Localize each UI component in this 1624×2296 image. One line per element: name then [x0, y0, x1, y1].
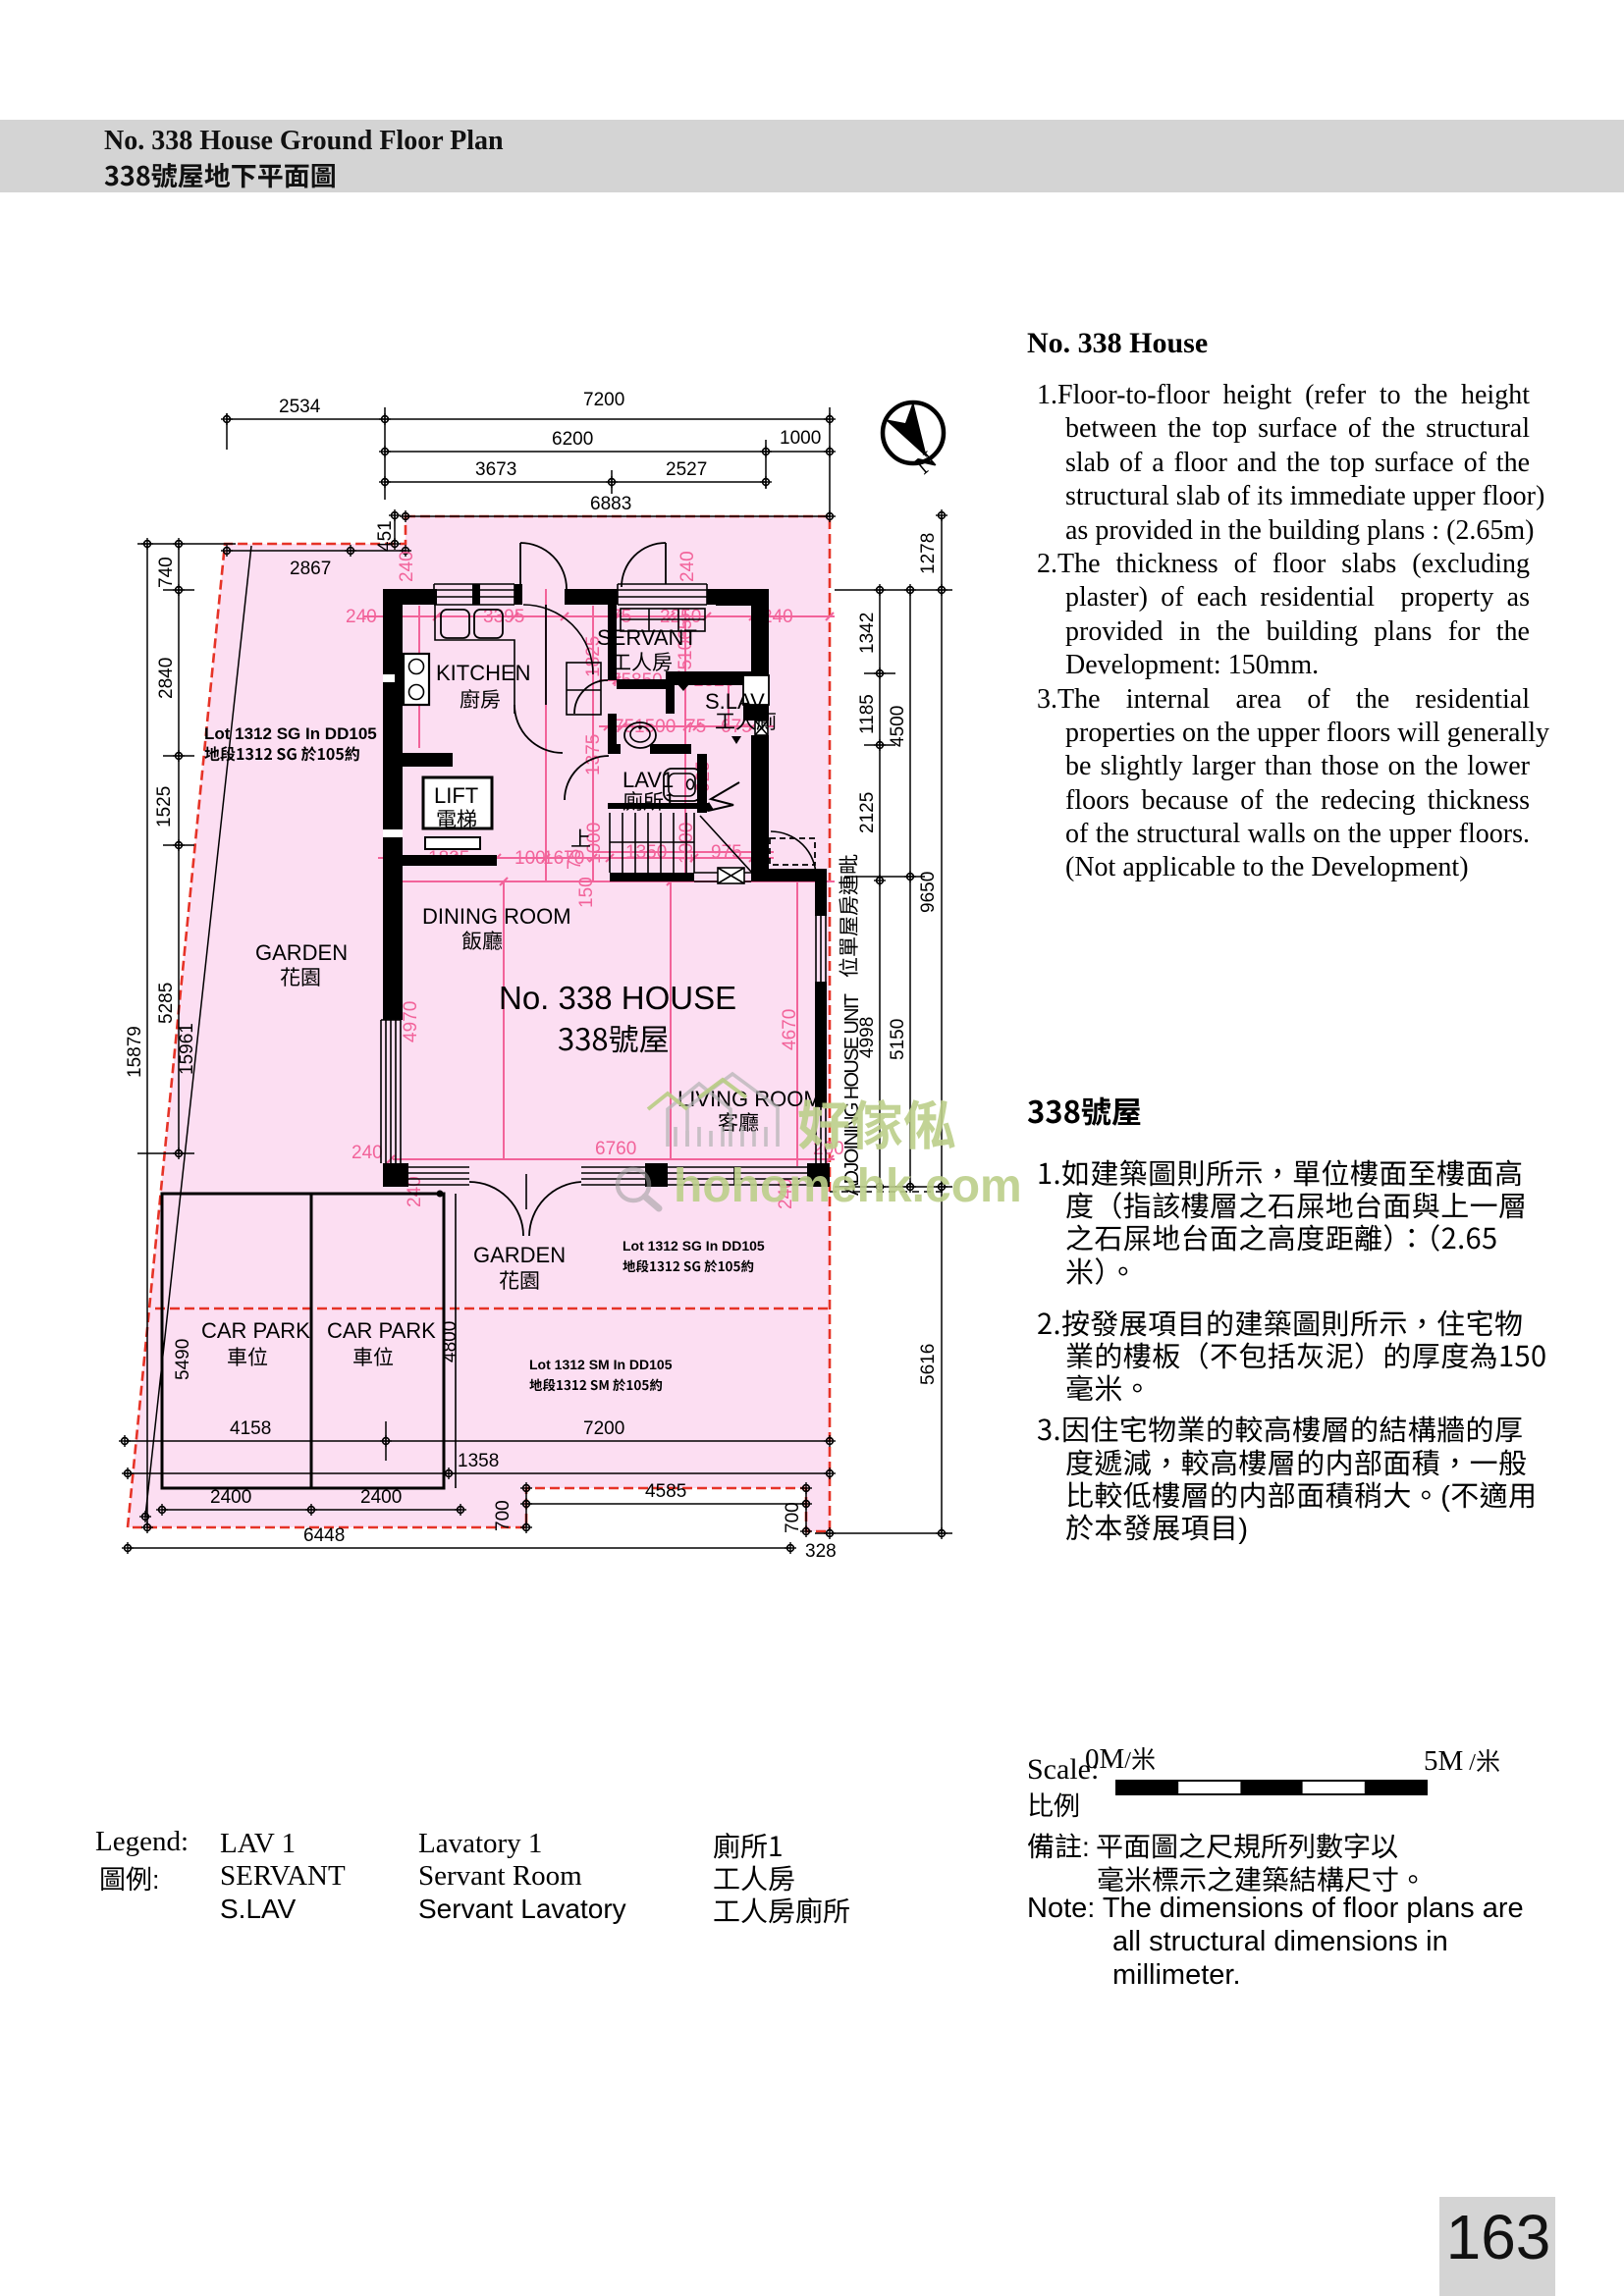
svg-text:328: 328 [805, 1541, 837, 1562]
svg-text:2534: 2534 [279, 397, 321, 417]
svg-text:工人房: 工人房 [611, 647, 673, 676]
svg-text:Lot 1312 SM In DD105: Lot 1312 SM In DD105 [529, 1357, 673, 1372]
svg-text:CAR PARK: CAR PARK [327, 1318, 436, 1343]
svg-text:工人廁: 工人廁 [715, 706, 777, 735]
svg-text:338號屋: 338號屋 [558, 1015, 670, 1059]
svg-text:2527: 2527 [666, 459, 707, 480]
svg-text:2125: 2125 [857, 792, 878, 833]
svg-text:1342: 1342 [857, 613, 878, 654]
svg-text:1278: 1278 [918, 533, 939, 574]
svg-text:9650: 9650 [918, 872, 939, 913]
svg-text:1358: 1358 [458, 1451, 499, 1471]
svg-text:KITCHEN: KITCHEN [436, 661, 531, 685]
svg-text:700: 700 [783, 1502, 803, 1533]
svg-text:GARDEN: GARDEN [473, 1243, 566, 1267]
svg-text:240: 240 [346, 607, 377, 627]
svg-text:1185: 1185 [857, 694, 878, 734]
svg-text:地段1312 SG 於105約: 地段1312 SG 於105約 [204, 741, 360, 765]
svg-text:3673: 3673 [475, 459, 516, 480]
svg-text:15879: 15879 [125, 1026, 145, 1078]
svg-text:451: 451 [375, 520, 396, 552]
svg-text:廁所1: 廁所1 [623, 786, 676, 816]
svg-text:No. 338 HOUSE: No. 338 HOUSE [499, 980, 736, 1016]
svg-text:地段1312 SG 於105約: 地段1312 SG 於105約 [623, 1255, 754, 1275]
svg-text:4970: 4970 [401, 1001, 421, 1042]
svg-text:4158: 4158 [230, 1418, 271, 1439]
svg-text:4670: 4670 [780, 1009, 800, 1050]
svg-text:700: 700 [493, 1500, 514, 1531]
svg-text:hohomehk.com: hohomehk.com [674, 1160, 1022, 1212]
svg-text:CAR PARK: CAR PARK [201, 1318, 310, 1343]
svg-text:電梯: 電梯 [436, 804, 477, 833]
svg-text:7200: 7200 [583, 390, 624, 410]
svg-text:240: 240 [397, 551, 417, 582]
svg-text:6883: 6883 [590, 494, 631, 514]
svg-text:飯廳: 飯廳 [461, 926, 503, 955]
svg-text:2400: 2400 [360, 1487, 402, 1508]
svg-text:6760: 6760 [595, 1139, 636, 1159]
svg-text:7200: 7200 [583, 1418, 624, 1439]
svg-text:740: 740 [156, 557, 177, 588]
svg-text:15961: 15961 [177, 1023, 197, 1075]
svg-text:240: 240 [677, 551, 698, 582]
svg-text:廚房: 廚房 [460, 684, 501, 714]
svg-text:240: 240 [352, 1143, 383, 1163]
svg-text:100: 100 [514, 848, 546, 869]
svg-text:150: 150 [576, 877, 597, 908]
svg-text:1000: 1000 [780, 428, 821, 449]
svg-text:好傢俬: 好傢俬 [797, 1083, 956, 1160]
svg-text:位單屋房連毗: 位單屋房連毗 [834, 854, 863, 978]
svg-text:花園: 花園 [280, 962, 321, 991]
svg-text:上: 上 [570, 824, 591, 853]
svg-text:1525: 1525 [154, 786, 175, 828]
svg-text:5616: 5616 [918, 1344, 939, 1385]
svg-text:5150: 5150 [888, 1019, 908, 1060]
svg-text:6448: 6448 [303, 1525, 345, 1546]
svg-text:75: 75 [685, 717, 706, 737]
svg-text:2400: 2400 [210, 1487, 251, 1508]
svg-text:2867: 2867 [290, 559, 331, 579]
svg-text:5490: 5490 [173, 1339, 193, 1380]
svg-text:車位: 車位 [227, 1342, 268, 1371]
svg-text:5285: 5285 [156, 983, 177, 1024]
svg-text:1375: 1375 [583, 734, 604, 775]
svg-text:4500: 4500 [888, 706, 908, 747]
svg-text:6200: 6200 [552, 429, 593, 450]
svg-text:Lot 1312 SG In DD105: Lot 1312 SG In DD105 [623, 1238, 765, 1254]
svg-text:地段1312 SM 於105約: 地段1312 SM 於105約 [529, 1374, 663, 1394]
svg-text:花園: 花園 [499, 1265, 540, 1295]
svg-text:4585: 4585 [645, 1481, 686, 1502]
svg-text:車位: 車位 [352, 1342, 394, 1371]
svg-text:2840: 2840 [156, 658, 177, 699]
